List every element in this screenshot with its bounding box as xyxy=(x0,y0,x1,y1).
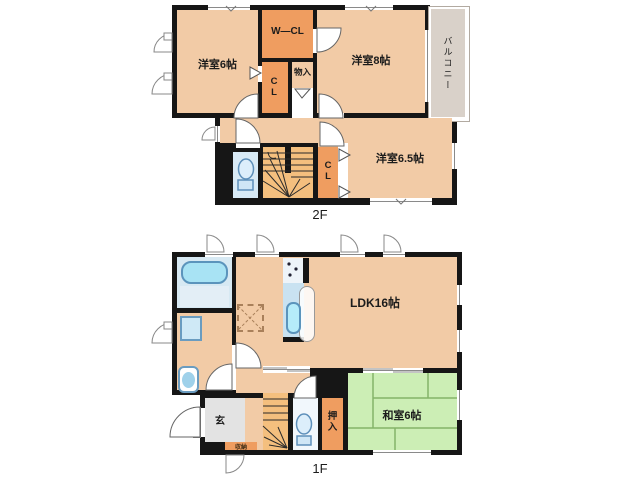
window-1f-top-1 xyxy=(205,252,233,257)
bathtub xyxy=(181,261,228,284)
room-1f-ldk xyxy=(236,257,457,368)
floor-storage-hatch xyxy=(237,304,264,332)
kitchen-counter-edge xyxy=(299,286,315,342)
window-2f-yoshitsu6-top xyxy=(208,5,250,10)
window-2f-balcony-door xyxy=(425,30,430,102)
window-1f-top-2 xyxy=(255,252,279,257)
stairs-1f xyxy=(263,393,288,450)
label-2f-wcl: W—CL xyxy=(262,24,313,38)
window-2f-yoshitsu65-bottom xyxy=(370,198,432,205)
window-1f-ldk-right-1 xyxy=(457,285,462,305)
label-floor-1f: 1F xyxy=(300,460,340,476)
window-1f-washitsu-right xyxy=(457,390,462,420)
door-gap-1f-washroom xyxy=(232,345,236,390)
door-gap-1f-entrance xyxy=(200,408,205,437)
kitchen-sink xyxy=(286,302,301,334)
door-gap-2f-cl-upper xyxy=(258,66,262,82)
floorplan-canvas: 洋室6帖 W—CL CL 物入 洋室8帖 バルコニー CL 洋室6.5帖 2F … xyxy=(0,0,640,480)
label-2f-cl-lower: CL xyxy=(322,159,334,185)
window-2f-yoshitsu65-right xyxy=(452,143,457,169)
label-1f-shuno: 収納 xyxy=(225,442,257,451)
window-2f-hall-left xyxy=(215,126,220,142)
window-2f-yoshitsu8-top xyxy=(345,5,393,10)
window-1f-ldk-right-2 xyxy=(457,330,462,352)
label-2f-monoire: 物入 xyxy=(291,66,314,78)
area-2f-cl-folding-doors xyxy=(338,143,348,198)
label-2f-cl-upper: CL xyxy=(268,75,280,101)
label-1f-washitsu: 和室6帖 xyxy=(352,407,452,423)
kitchen-stove xyxy=(283,258,304,283)
label-1f-ldk: LDK16帖 xyxy=(325,293,425,311)
window-1f-washitsu-bottom xyxy=(373,450,431,455)
room-2f-toilet xyxy=(233,152,258,198)
label-2f-yoshitsu8: 洋室8帖 xyxy=(317,52,425,68)
window-1f-top-3 xyxy=(340,252,365,257)
label-2f-yoshitsu65: 洋室6.5帖 xyxy=(348,150,452,166)
wall-2f-stair-center xyxy=(285,147,291,173)
label-2f-balcony: バルコニー xyxy=(438,18,458,108)
area-2f-monoire-door xyxy=(292,88,313,118)
washing-machine xyxy=(180,316,202,341)
label-1f-genkan: 玄 xyxy=(208,412,232,426)
window-1f-top-4 xyxy=(383,252,405,257)
room-1f-toilet xyxy=(293,398,318,450)
door-gap-2f-wcl xyxy=(313,29,317,53)
door-gap-2f-yoshitsu8 xyxy=(319,113,344,118)
sliding-door-ldk-hall xyxy=(263,366,310,373)
kitchen-wall-stub-top xyxy=(303,258,309,283)
door-gap-2f-yoshitsu6 xyxy=(236,113,258,118)
label-1f-oshiire: 押入 xyxy=(326,408,339,438)
washbasin-bowl xyxy=(182,372,195,388)
sliding-door-ldk-washitsu xyxy=(363,368,423,373)
label-floor-2f: 2F xyxy=(300,206,340,222)
bathroom-floor xyxy=(180,286,229,307)
door-gap-2f-toilet xyxy=(236,143,260,148)
label-2f-yoshitsu6: 洋室6帖 xyxy=(177,56,258,72)
door-gap-1f-toilet xyxy=(295,393,316,398)
